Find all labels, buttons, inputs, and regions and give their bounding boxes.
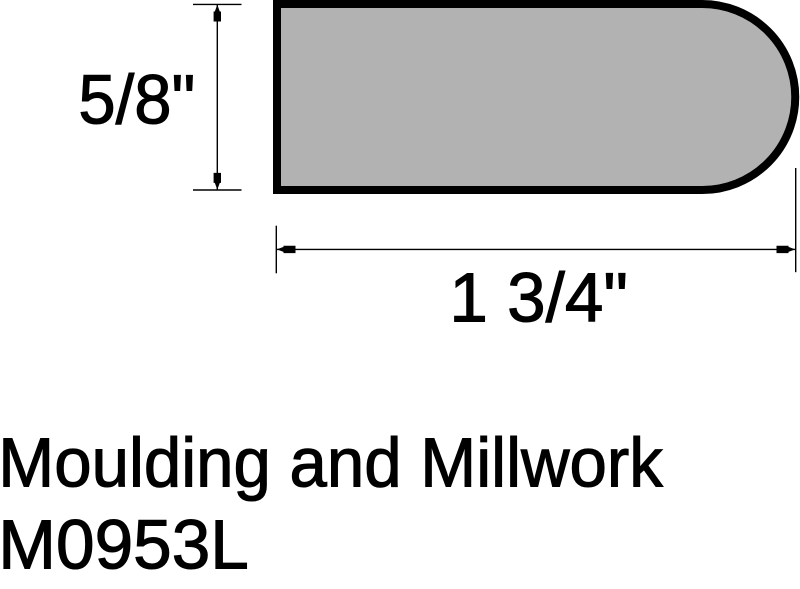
svg-text:5/8": 5/8" (78, 60, 195, 138)
svg-text:Moulding and Millwork: Moulding and Millwork (0, 423, 664, 501)
svg-text:M0953L: M0953L (0, 505, 249, 583)
svg-text:1 3/4": 1 3/4" (449, 258, 628, 336)
